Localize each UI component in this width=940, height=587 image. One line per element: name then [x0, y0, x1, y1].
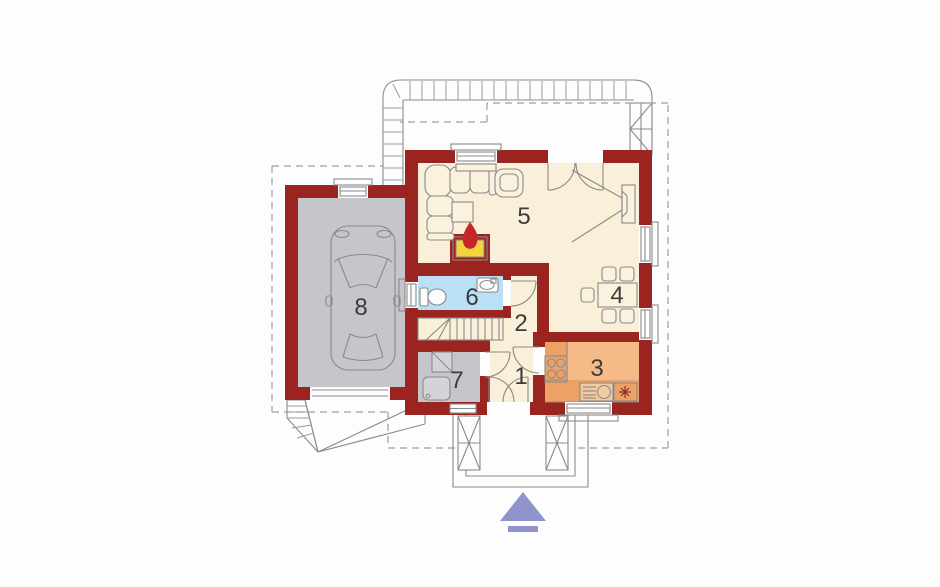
room-label-3: 3 — [590, 355, 603, 382]
room-label-1: 1 — [514, 363, 527, 390]
coffee-table — [452, 202, 473, 222]
porch-column-left — [458, 416, 480, 470]
floor-plan-canvas: 1 2 3 4 5 6 7 8 — [0, 0, 940, 587]
radiator — [456, 164, 496, 171]
armchair — [495, 169, 523, 197]
room-label-7: 7 — [450, 367, 463, 394]
floor-plan-drawing: 1 2 3 4 5 6 7 8 — [0, 0, 940, 587]
room-label-4: 4 — [610, 282, 623, 309]
room-label-5: 5 — [517, 203, 530, 230]
porch-column-right — [546, 416, 568, 470]
kitchen-sink-icon — [580, 383, 613, 401]
room-label-2: 2 — [514, 310, 527, 337]
chair-icon — [581, 288, 594, 302]
boiler-icon — [423, 377, 450, 400]
chair-icon — [620, 309, 634, 323]
chair-icon — [602, 309, 616, 323]
water-heater-icon — [432, 352, 452, 372]
room-label-8: 8 — [354, 294, 367, 321]
room-label-6: 6 — [465, 284, 478, 311]
sink-icon — [477, 278, 498, 292]
chair-icon — [620, 267, 634, 281]
toilet-icon — [420, 288, 446, 306]
chair-icon — [602, 267, 616, 281]
